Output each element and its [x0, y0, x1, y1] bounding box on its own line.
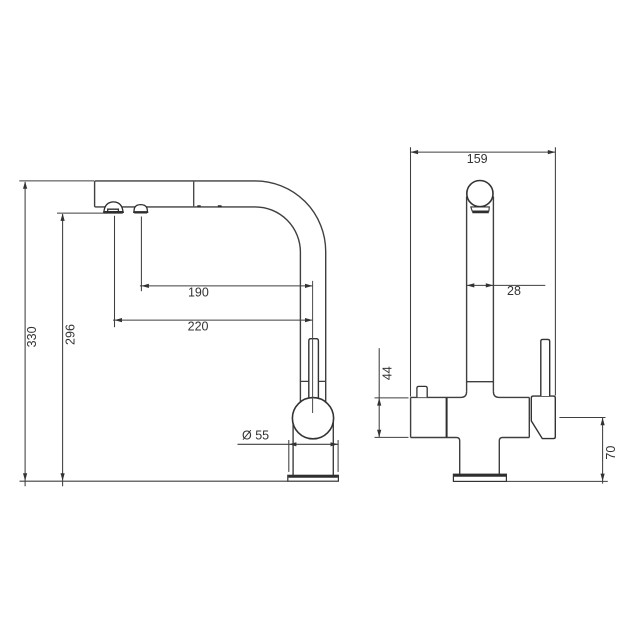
svg-text:330: 330 [25, 326, 39, 347]
svg-text:Ø 55: Ø 55 [242, 429, 269, 443]
svg-text:44: 44 [380, 366, 394, 380]
svg-text:190: 190 [188, 286, 209, 300]
svg-text:159: 159 [467, 152, 488, 166]
svg-text:296: 296 [64, 324, 78, 345]
svg-text:220: 220 [188, 319, 209, 333]
svg-text:70: 70 [604, 446, 618, 460]
svg-text:28: 28 [507, 284, 521, 298]
